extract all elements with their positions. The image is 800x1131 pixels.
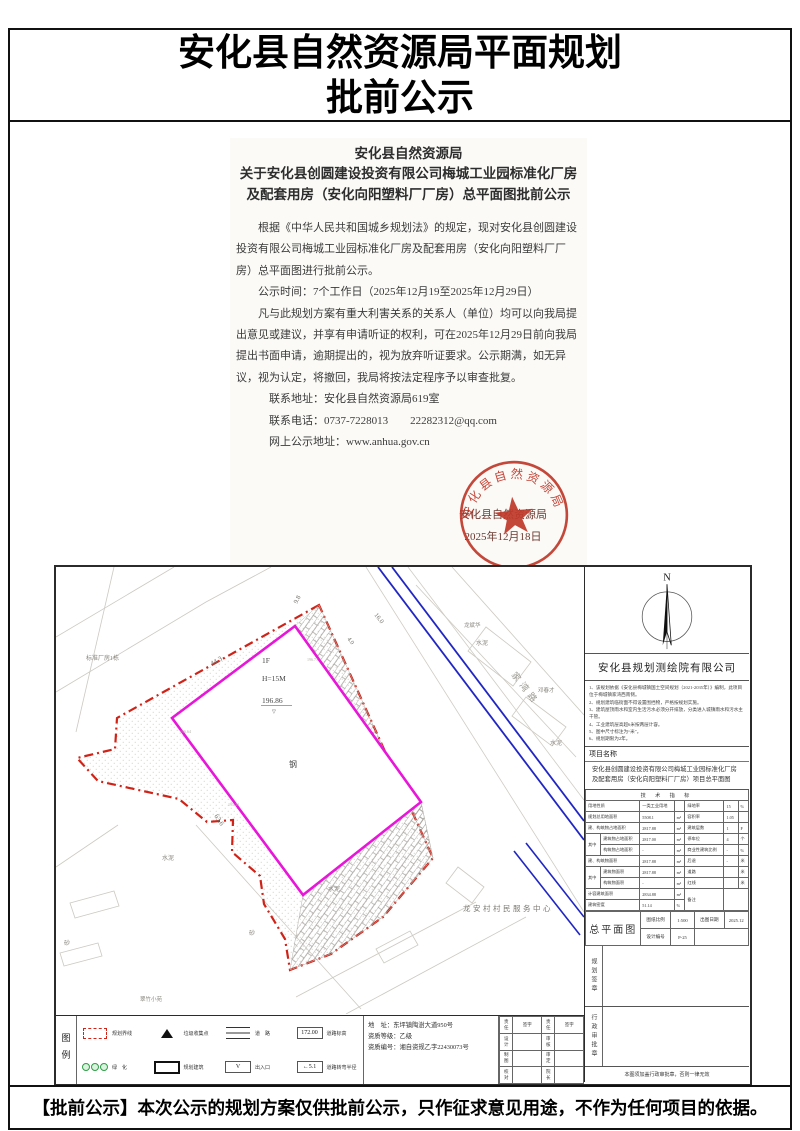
- plan-note: 5、图中尺寸标注为“米”。: [589, 728, 745, 735]
- signoff-cell: 校对: [500, 1067, 513, 1084]
- tech-cell: 个: [738, 834, 749, 845]
- north-label: N: [663, 572, 671, 583]
- garbage-point-symbol-icon: [154, 1028, 180, 1039]
- tech-cell: 备注: [685, 889, 724, 911]
- legend-item: 规划建筑: [149, 1050, 221, 1084]
- surface-label: 砂: [249, 929, 255, 937]
- qualification-grade: 资质等级：乙级: [368, 1031, 494, 1042]
- tech-cell: -: [724, 845, 738, 856]
- credentials-block: 地 址：东坪镇陶澍大道950号 资质等级：乙级 资质编号：湘自资规乙字22430…: [364, 1016, 499, 1084]
- footer-disclaimer: 【批前公示】本次公示的规划方案仅供批前公示，只作征求意见用途，不作为任何项目的依…: [8, 1085, 792, 1128]
- legend-item-label: 规划界线: [112, 1030, 132, 1037]
- signoff-cell: [555, 1050, 584, 1067]
- tech-cell: 2834.88: [640, 889, 674, 900]
- legend-item-label: 出入口: [255, 1064, 270, 1071]
- official-seal-icon: 安化县自然资源局: [447, 448, 581, 582]
- spot-elevation: 196.71: [307, 657, 318, 662]
- legend-strip: 图例 规划界线 绿 化 垃圾收集点 规划建筑: [56, 1015, 584, 1084]
- road-elevation-symbol-icon: 172.00: [297, 1028, 323, 1039]
- tech-cell: m²: [674, 812, 685, 823]
- surface-label: 水泥: [550, 739, 562, 747]
- tech-cell: 容积率: [685, 812, 724, 823]
- boundary-symbol-icon: [82, 1028, 108, 1039]
- notice-org: 安化县自然资源局: [236, 142, 581, 162]
- page-title-line2: 批前公示: [326, 75, 474, 120]
- page-title: 安化县自然资源局平面规划 批前公示: [8, 28, 792, 122]
- tech-cell: -: [640, 878, 674, 889]
- tech-cell: %: [738, 845, 749, 856]
- contact-phone: 联系电话：0737-7228013 22282312@qq.com: [236, 411, 581, 432]
- legend-item-label: 道路标高: [327, 1030, 347, 1037]
- signoff-cell: 签字: [555, 1017, 584, 1034]
- survey-company-name: 安化县规划测绘院有限公司: [585, 654, 749, 681]
- signoff-cell: 院长: [542, 1067, 555, 1084]
- owner-name-label: 邓春才: [538, 686, 555, 694]
- planned-building-symbol-icon: [154, 1062, 180, 1073]
- signature-block: 安化县自然资源局 2025年12月18日 安化县自然资源局: [236, 460, 581, 578]
- tech-cell: 米: [738, 867, 749, 878]
- legend-items: 规划界线 绿 化 垃圾收集点 规划建筑 道 路: [77, 1016, 364, 1084]
- scale-value: 1:500: [670, 912, 694, 929]
- legend-item-label: 垃圾收集点: [184, 1030, 209, 1037]
- owner-name-label: 龙斌华: [464, 621, 481, 629]
- garden-label: 翠竹小苑: [140, 995, 163, 1003]
- tech-cell: 绿地率: [685, 801, 724, 812]
- site-plan-drawing: 1F H=15M 196.86 ▽ 钢 水泥 水泥 水泥 水泥 砂 砂 龙安村村…: [56, 567, 584, 1014]
- surface-label: 水泥: [476, 639, 488, 647]
- tech-cell: 建筑物占地面积: [601, 834, 640, 845]
- building-elevation-label: 196.86: [262, 696, 283, 705]
- tech-cell: 建、构筑物面积: [586, 856, 640, 867]
- legend-item: 规划界线: [77, 1016, 149, 1050]
- tech-cell: [674, 801, 685, 812]
- tech-cell: 一类工业用地: [640, 801, 674, 812]
- signoff-cell: 审定: [542, 1050, 555, 1067]
- tech-cell: %: [674, 900, 685, 911]
- tech-cell: 建筑层数: [685, 823, 724, 834]
- tech-cell: 米: [738, 856, 749, 867]
- tech-cell: [738, 812, 749, 823]
- surface-label: 砂: [64, 939, 70, 947]
- signoff-table: 责任 签字 责任 签字 设计 审核 制图 审定: [499, 1016, 584, 1084]
- number-label: 设计编号: [641, 929, 670, 946]
- title-block: N 安化县规划测绘院有限公司 1、该规划依据《安化县梅城镇国土空间规划（2021…: [584, 567, 749, 1082]
- plan-notes: 1、该规划依据《安化县梅城镇国土空间规划（2021-2035年）》编制，此项目位…: [585, 681, 749, 747]
- legend-item: 绿 化: [77, 1050, 149, 1084]
- notice-paragraph: 公示时间：7个工作日（2025年12月19至2025年12月29日）: [236, 282, 581, 303]
- admin-seal-area: [603, 1007, 749, 1066]
- tech-cell: 计容建筑面积: [586, 889, 640, 900]
- scale-label: 图纸比例: [641, 912, 670, 929]
- seal-star-icon: [493, 494, 535, 535]
- tech-cell: 4: [724, 834, 738, 845]
- admin-seal-box: 行政审批章: [585, 1007, 749, 1067]
- notice-contact: 联系地址：安化县自然资源局619室 联系电话：0737-7228013 2228…: [236, 389, 581, 453]
- qualification-number: 资质编号：湘自资规乙字22430073号: [368, 1042, 494, 1053]
- date-label: 出图日期: [695, 912, 724, 929]
- tech-cell: m²: [674, 878, 685, 889]
- tech-cell: 后退: [685, 856, 724, 867]
- legend-item-label: 道 路: [255, 1030, 270, 1037]
- tech-cell: m²: [674, 856, 685, 867]
- plan-note: 6、规划期限为2年。: [589, 735, 745, 742]
- tech-cell: %: [738, 801, 749, 812]
- tech-cell: 1.05: [724, 812, 738, 823]
- project-name: 安化县创圆建设投资有限公司梅城工业园标准化厂房及配套用房（安化向阳塑料厂厂房）项…: [585, 762, 749, 790]
- signoff-cell: [513, 1033, 542, 1050]
- tech-cell: 2817.88: [640, 823, 674, 834]
- building-structure-label: 钢: [289, 759, 297, 769]
- legend-item-label: 规划建筑: [184, 1064, 204, 1071]
- drawing-info-empty: [695, 929, 749, 946]
- office-address: 地 址：东坪镇陶澍大道950号: [368, 1020, 494, 1031]
- dimension-label: 16.0: [372, 612, 385, 625]
- tech-cell: 其中: [586, 867, 601, 889]
- signoff-cell: [555, 1033, 584, 1050]
- tech-cell: 建筑密度: [586, 900, 640, 911]
- elevation-mark: ▽: [272, 709, 276, 715]
- notice-paragraph: 根据《中华人民共和国城乡规划法》的规定，现对安化县创圆建设投资有限公司梅城工业园…: [236, 218, 581, 282]
- tech-cell: m²: [674, 845, 685, 856]
- tech-cell: 规划总用地面积: [586, 812, 640, 823]
- north-arrow-box: N: [585, 567, 749, 654]
- tech-cell: m²: [674, 834, 685, 845]
- admin-seal-label: 行政审批章: [585, 1007, 603, 1066]
- plan-seal-label: 规划签章: [585, 946, 603, 1005]
- number-value: P-25: [670, 929, 694, 946]
- signoff-cell: [513, 1067, 542, 1084]
- signoff-cell: 制图: [500, 1050, 513, 1067]
- tech-cell: [724, 878, 738, 889]
- invalid-note: 本图须加盖行政审批章，否则一律无效: [585, 1067, 749, 1082]
- building-height-label: H=15M: [262, 674, 286, 683]
- tech-cell: 5508.1: [640, 812, 674, 823]
- tech-cell: [724, 867, 738, 878]
- tech-cell: 建筑物面积: [601, 867, 640, 878]
- tech-cell: 红线: [685, 878, 724, 889]
- tech-cell: -: [640, 845, 674, 856]
- signoff-cell: 签字: [513, 1017, 542, 1034]
- surface-label: 水泥: [328, 885, 340, 893]
- plan-seal-area: [603, 946, 749, 1005]
- technical-indicators-table: 技 术 指 标 用地性质 一类工业用地 绿地率 15 % 规划总用地面积 550…: [585, 790, 749, 911]
- entrance-symbol-icon: V: [225, 1062, 251, 1073]
- tech-cell: 其中: [586, 834, 601, 856]
- tech-cell: 2817.88: [640, 856, 674, 867]
- notice-body: 根据《中华人民共和国城乡规划法》的规定，现对安化县创圆建设投资有限公司梅城工业园…: [236, 218, 581, 390]
- legend-item: V 出入口: [220, 1050, 292, 1084]
- tech-cell: 停车位: [685, 834, 724, 845]
- legend-item: ←5.1 道路转弯半径: [292, 1050, 364, 1084]
- tech-cell: m²: [674, 823, 685, 834]
- signoff-cell: 责任: [542, 1017, 555, 1034]
- surface-label: 水泥: [162, 854, 174, 862]
- tech-cell: 15: [724, 801, 738, 812]
- road-symbol-icon: [225, 1028, 251, 1039]
- drawing-info-row: 总平面图 图纸比例 1:500 出图日期 2025.12 设计编号 P-25: [585, 911, 749, 946]
- notice-document: 安化县自然资源局 关于安化县创圆建设投资有限公司梅城工业园标准化厂房及配套用房（…: [230, 138, 587, 582]
- tech-cell: -: [724, 856, 738, 867]
- signoff-cell: 责任: [500, 1017, 513, 1034]
- factory-label: 标准厂房1栋: [86, 654, 119, 662]
- tech-cell: 构筑物占地面积: [601, 845, 640, 856]
- signoff-cell: [513, 1050, 542, 1067]
- plan-note: 2、规划建筑临街面不得设置围挡物，严格按规划实施。: [589, 699, 745, 706]
- spot-elevation: 196.64: [180, 729, 191, 734]
- project-name-label: 项目名称: [585, 747, 749, 762]
- tech-cell: 商业性建筑比例: [685, 845, 724, 856]
- legend-item: 道 路: [220, 1016, 292, 1050]
- spot-elevation: 195.23: [228, 802, 239, 807]
- legend-item: 垃圾收集点: [149, 1016, 221, 1050]
- legend-item: 172.00 道路标高: [292, 1016, 364, 1050]
- tech-cell: 2817.88: [640, 867, 674, 878]
- tech-cell: 米: [738, 878, 749, 889]
- tech-cell: 51.14: [640, 900, 674, 911]
- tech-cell: 用地性质: [586, 801, 640, 812]
- tech-cell: 构筑物面积: [601, 878, 640, 889]
- tech-cell: F: [738, 823, 749, 834]
- turn-radius-symbol-icon: ←5.1: [297, 1062, 323, 1073]
- tech-cell: 2817.00: [640, 834, 674, 845]
- plan-seal-box: 规划签章: [585, 946, 749, 1006]
- notice-paragraph: 凡与此规划方案有重大利害关系的关系人（单位）均可以向我局提出意见或建议，并享有申…: [236, 304, 581, 390]
- dimension-label: 4.0: [345, 637, 354, 647]
- tech-cell-remarks: [724, 889, 749, 911]
- tech-cell: m²: [674, 889, 685, 900]
- date-value: 2025.12: [724, 912, 748, 929]
- signoff-cell: [555, 1067, 584, 1084]
- signoff-cell: 审核: [542, 1033, 555, 1050]
- online-url: 网上公示地址：www.anhua.gov.cn: [236, 432, 581, 453]
- plan-note: 3、建筑屋顶雨水和室内生活污水必须分开排放，分类进入城镇雨水和污水主干管。: [589, 706, 745, 721]
- tech-cell: 建、构筑物占地面积: [586, 823, 640, 834]
- north-arrow-icon: N: [624, 569, 710, 651]
- plan-note: 4、工业建筑层高超6米按两层计容。: [589, 721, 745, 728]
- legend-title: 图例: [56, 1016, 77, 1084]
- site-plan-sheet: 1F H=15M 196.86 ▽ 钢 水泥 水泥 水泥 水泥 砂 砂 龙安村村…: [54, 565, 752, 1086]
- tech-cell: 1: [724, 823, 738, 834]
- service-center-label: 龙安村村民服务中心: [463, 903, 553, 913]
- road-edge-blue: [392, 567, 584, 821]
- building-floors-label: 1F: [262, 656, 270, 665]
- notice-subject: 关于安化县创圆建设投资有限公司梅城工业园标准化厂房及配套用房（安化向阳塑料厂厂房…: [236, 164, 581, 206]
- signoff-cell: 设计: [500, 1033, 513, 1050]
- tech-cell: 道路: [685, 867, 724, 878]
- tech-cell: m²: [674, 867, 685, 878]
- plan-note: 1、该规划依据《安化县梅城镇国土空间规划（2021-2035年）》编制，此项目位…: [589, 684, 745, 699]
- legend-item-label: 绿 化: [112, 1064, 127, 1071]
- announcement-page: 安化县自然资源局平面规划 批前公示 安化县自然资源局 关于安化县创圆建设投资有限…: [0, 0, 800, 1131]
- greenery-symbol-icon: [82, 1062, 108, 1073]
- legend-item-label: 道路转弯半径: [327, 1064, 357, 1071]
- dimension-label: 9.8: [293, 594, 303, 604]
- page-title-line1: 安化县自然资源局平面规划: [178, 30, 622, 75]
- drawing-name: 总平面图: [586, 912, 641, 946]
- tech-table-header: 技 术 指 标: [586, 790, 749, 801]
- contact-address: 联系地址：安化县自然资源局619室: [236, 389, 581, 410]
